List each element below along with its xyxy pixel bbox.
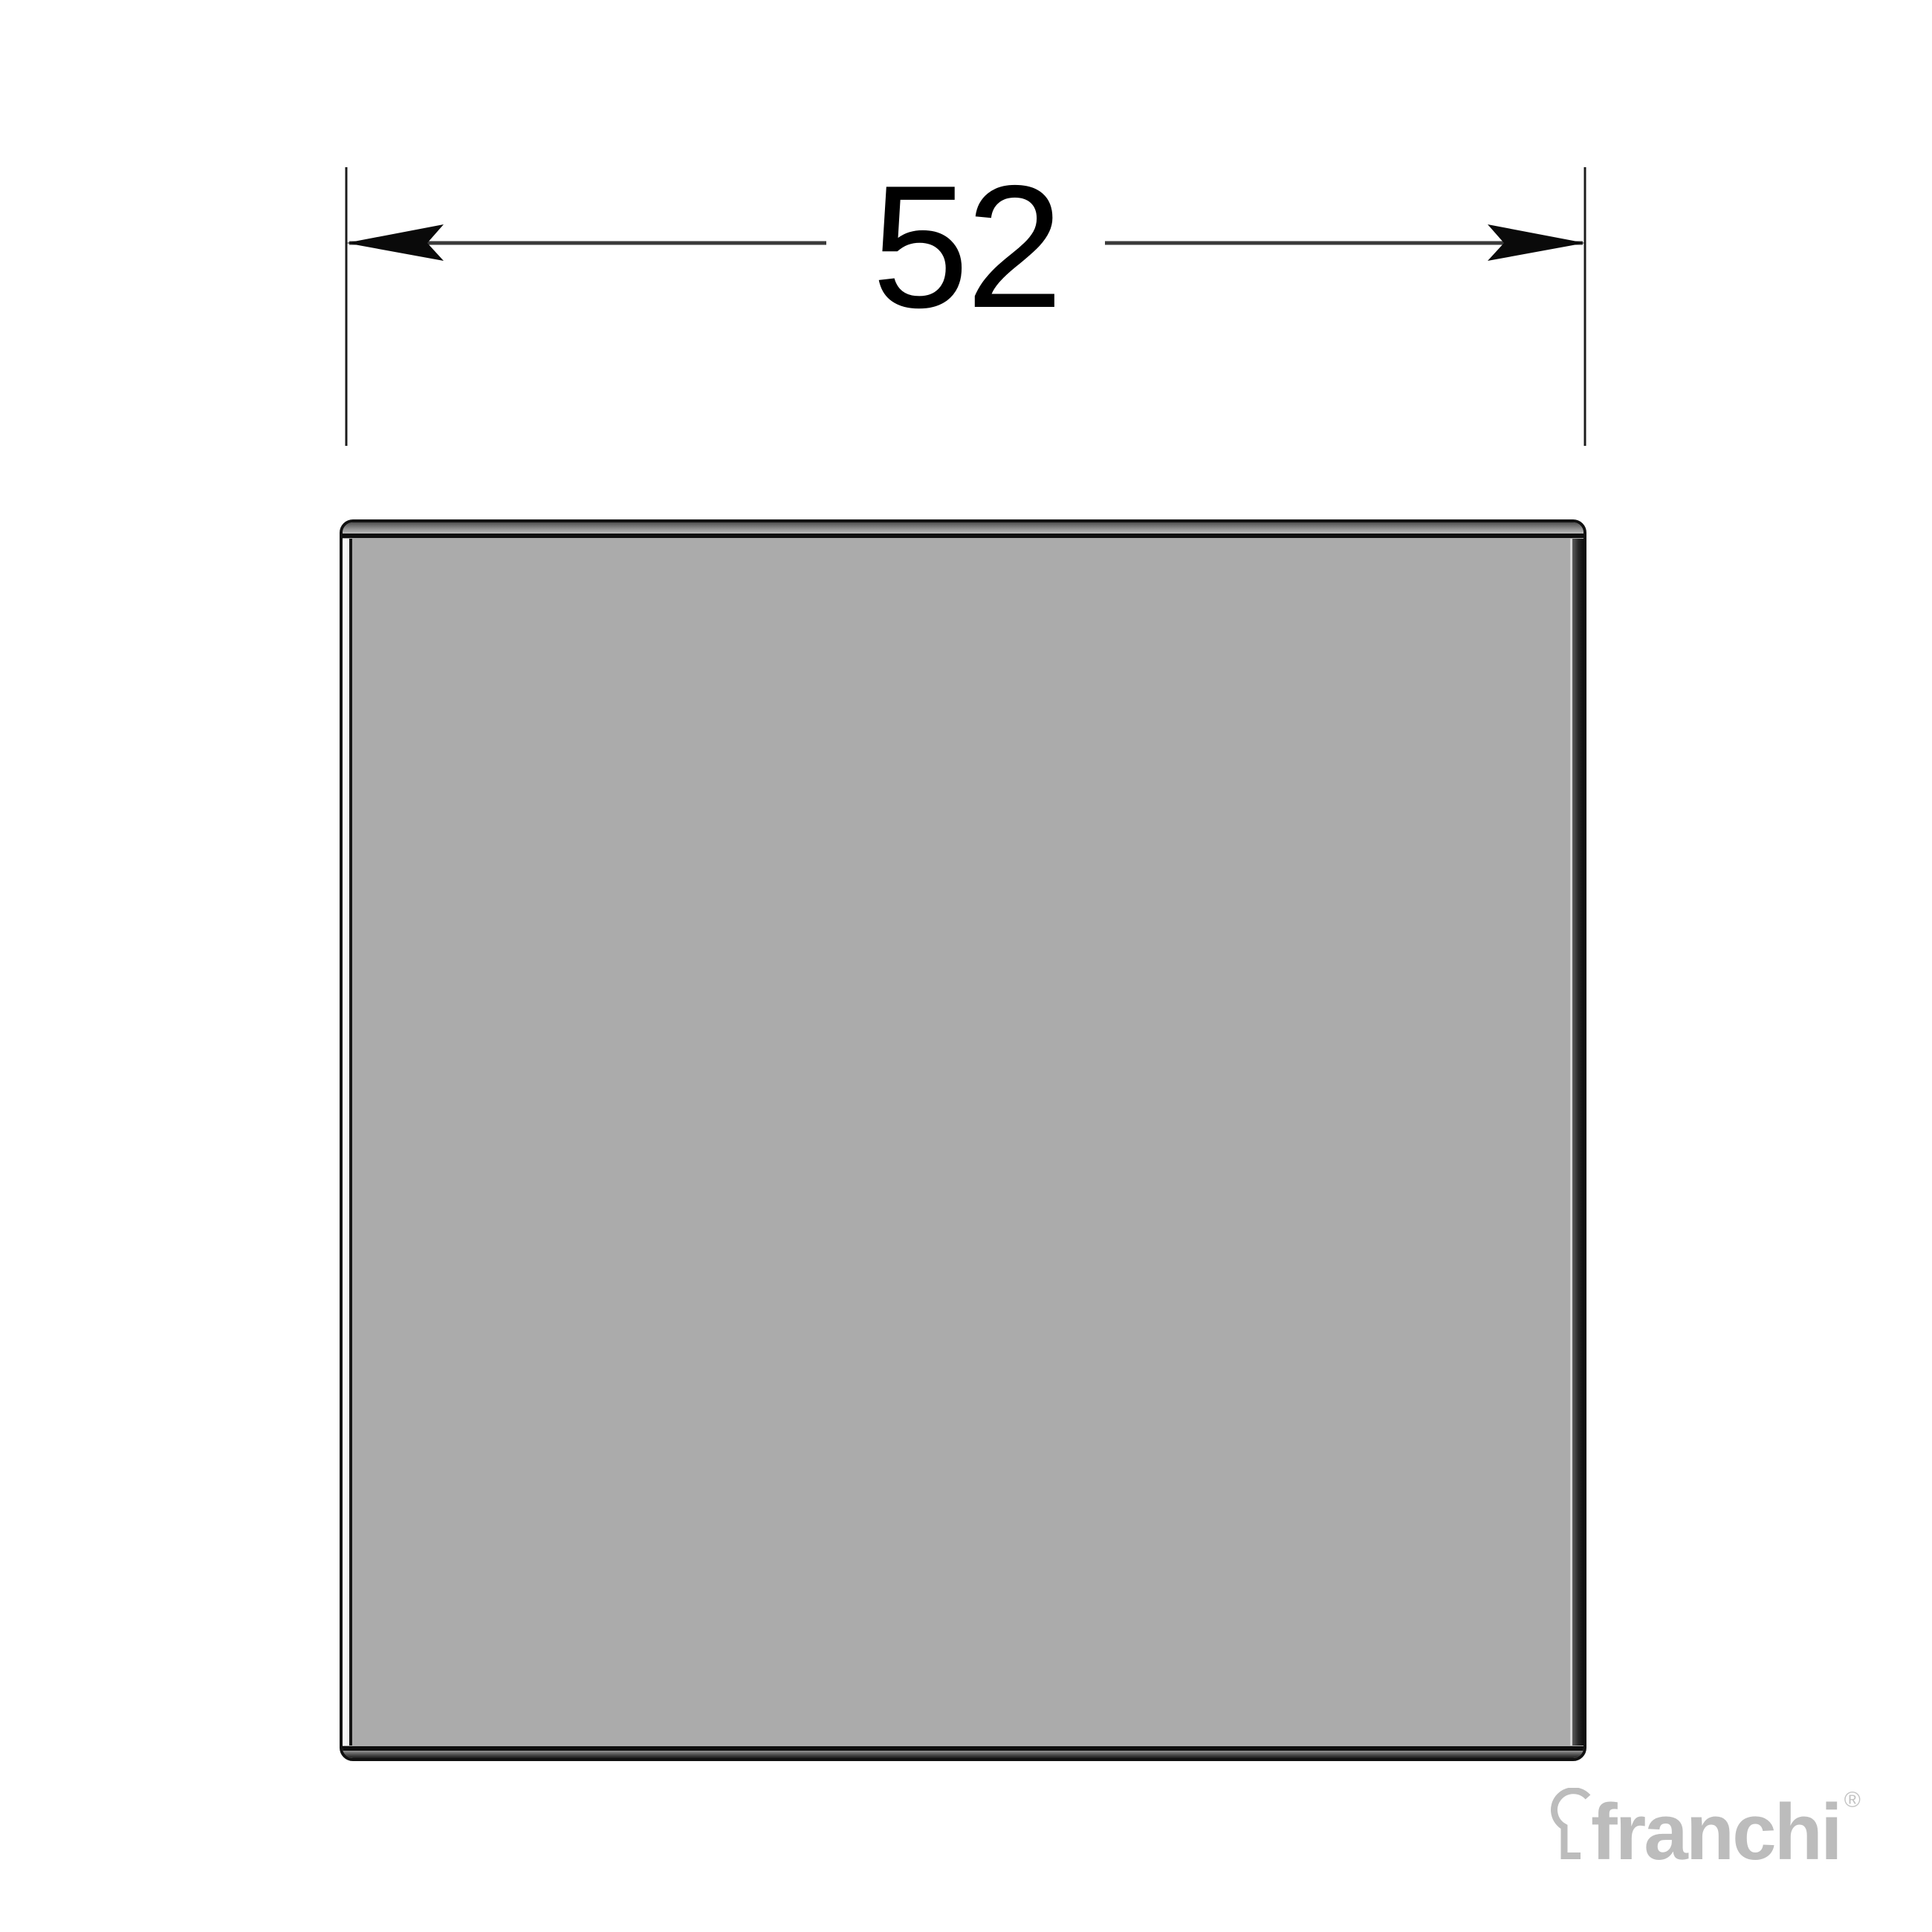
part-square-end-cap	[340, 519, 1586, 1761]
registered-trademark: ®	[1844, 1789, 1861, 1812]
part-bottom-bevel-edge	[343, 1746, 1583, 1758]
brand-name: franchi	[1591, 1801, 1841, 1863]
part-right-bevel-edge	[1570, 539, 1583, 1745]
keyhole-icon	[1549, 1788, 1595, 1863]
part-left-bevel-edge	[343, 539, 352, 1745]
dimension-value: 52	[806, 159, 1126, 334]
part-top-bevel-edge	[343, 522, 1583, 538]
drawing-canvas: 52 franchi ®	[0, 0, 1932, 1932]
brand-watermark: franchi ®	[1549, 1788, 1861, 1863]
